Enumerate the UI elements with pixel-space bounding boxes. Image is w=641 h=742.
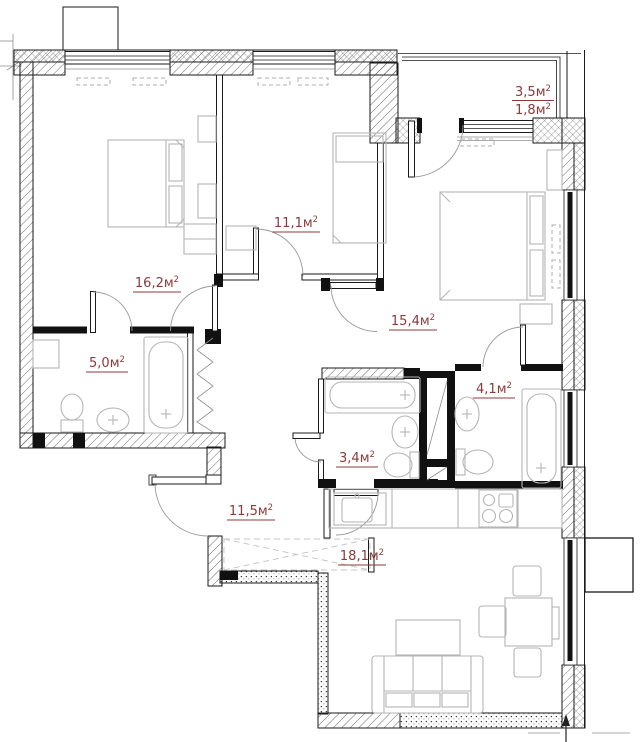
radiator <box>461 139 494 146</box>
toilet-icon <box>456 449 493 475</box>
toilet-icon <box>384 452 419 478</box>
wardrobe <box>184 224 216 254</box>
sink-icon <box>97 408 129 432</box>
room-label-balcony: 3,5м2 1,8м2 <box>512 84 554 118</box>
coffee-table <box>396 620 460 655</box>
radiator <box>298 78 328 85</box>
room-label-bedroom-1: 16,2м2 <box>133 275 181 292</box>
entry-door-icon <box>149 475 221 536</box>
room-label-bathroom-2: 3,4м2 <box>336 450 378 467</box>
chair <box>479 606 506 637</box>
svg-text:11,1м2: 11,1м2 <box>274 215 318 231</box>
door-icon <box>321 278 384 332</box>
window-icon <box>65 50 170 69</box>
room-label-kitchen-living: 18,1м2 <box>338 548 386 565</box>
window-icon <box>563 190 584 300</box>
bathtub-icon <box>522 389 561 488</box>
svg-text:16,2м2: 16,2м2 <box>135 275 179 291</box>
room-label-bathroom-3: 4,1м2 <box>473 381 515 398</box>
chair <box>514 648 541 677</box>
radiator <box>77 78 110 85</box>
washing-machine <box>33 340 59 368</box>
radiator <box>258 78 290 85</box>
svg-text:1,8м2: 1,8м2 <box>515 102 551 118</box>
sink-icon <box>455 397 479 431</box>
svg-text:4,1м2: 4,1м2 <box>476 381 512 397</box>
exterior-ledge <box>585 538 633 592</box>
bench <box>552 607 559 639</box>
window-icon <box>563 390 584 467</box>
svg-text:15,4м2: 15,4м2 <box>391 313 435 329</box>
nightstand <box>520 304 552 324</box>
door-icon <box>293 433 321 462</box>
svg-text:3,5м2: 3,5м2 <box>515 84 551 100</box>
door-icon <box>483 325 526 367</box>
nightstand <box>198 116 216 142</box>
double-bed <box>108 140 184 227</box>
vent-shaft <box>419 371 455 488</box>
room-label-hallway: 11,5м2 <box>227 503 275 520</box>
dresser <box>547 150 562 190</box>
window-icon <box>253 50 335 69</box>
sink-icon <box>392 416 418 448</box>
radiator <box>552 225 560 253</box>
room-label-bathroom-1: 5,0м2 <box>86 355 128 372</box>
stove-icon <box>479 490 517 527</box>
interior-walls <box>33 75 563 572</box>
radiator <box>133 78 166 85</box>
room-label-bedroom-3: 15,4м2 <box>389 313 437 330</box>
exterior-pilaster <box>63 7 118 50</box>
svg-text:5,0м2: 5,0м2 <box>89 355 125 371</box>
bathtub-icon <box>325 377 420 413</box>
balcony-glazing <box>398 51 581 118</box>
svg-text:11,5м2: 11,5м2 <box>229 503 273 519</box>
svg-text:18,1м2: 18,1м2 <box>340 548 384 564</box>
chair <box>513 566 541 596</box>
door-icon <box>254 228 304 276</box>
dresser <box>226 226 256 250</box>
double-bed <box>440 192 545 300</box>
dining-table <box>505 598 552 646</box>
sofa <box>372 656 483 713</box>
radiator <box>552 260 560 288</box>
door-icon <box>91 292 133 333</box>
bathtub-icon <box>144 337 188 433</box>
window-icon <box>563 538 633 665</box>
toilet-icon <box>61 394 83 432</box>
svg-text:3,4м2: 3,4м2 <box>339 450 375 466</box>
floor-plan: 16,2м2 11,1м2 15,4м2 5,0м2 3,4м2 4,1м2 1… <box>0 0 641 742</box>
nightstand <box>198 184 216 218</box>
riser-zigzag <box>197 338 213 432</box>
window-icon <box>457 121 533 141</box>
room-label-bedroom-2: 11,1м2 <box>272 215 320 232</box>
